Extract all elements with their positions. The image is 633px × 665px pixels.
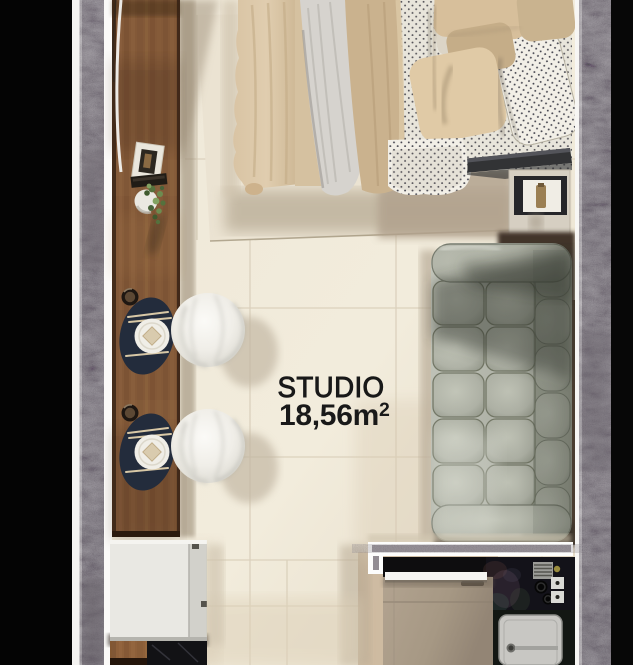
svg-text:18,56m2: 18,56m2 [279,399,390,432]
